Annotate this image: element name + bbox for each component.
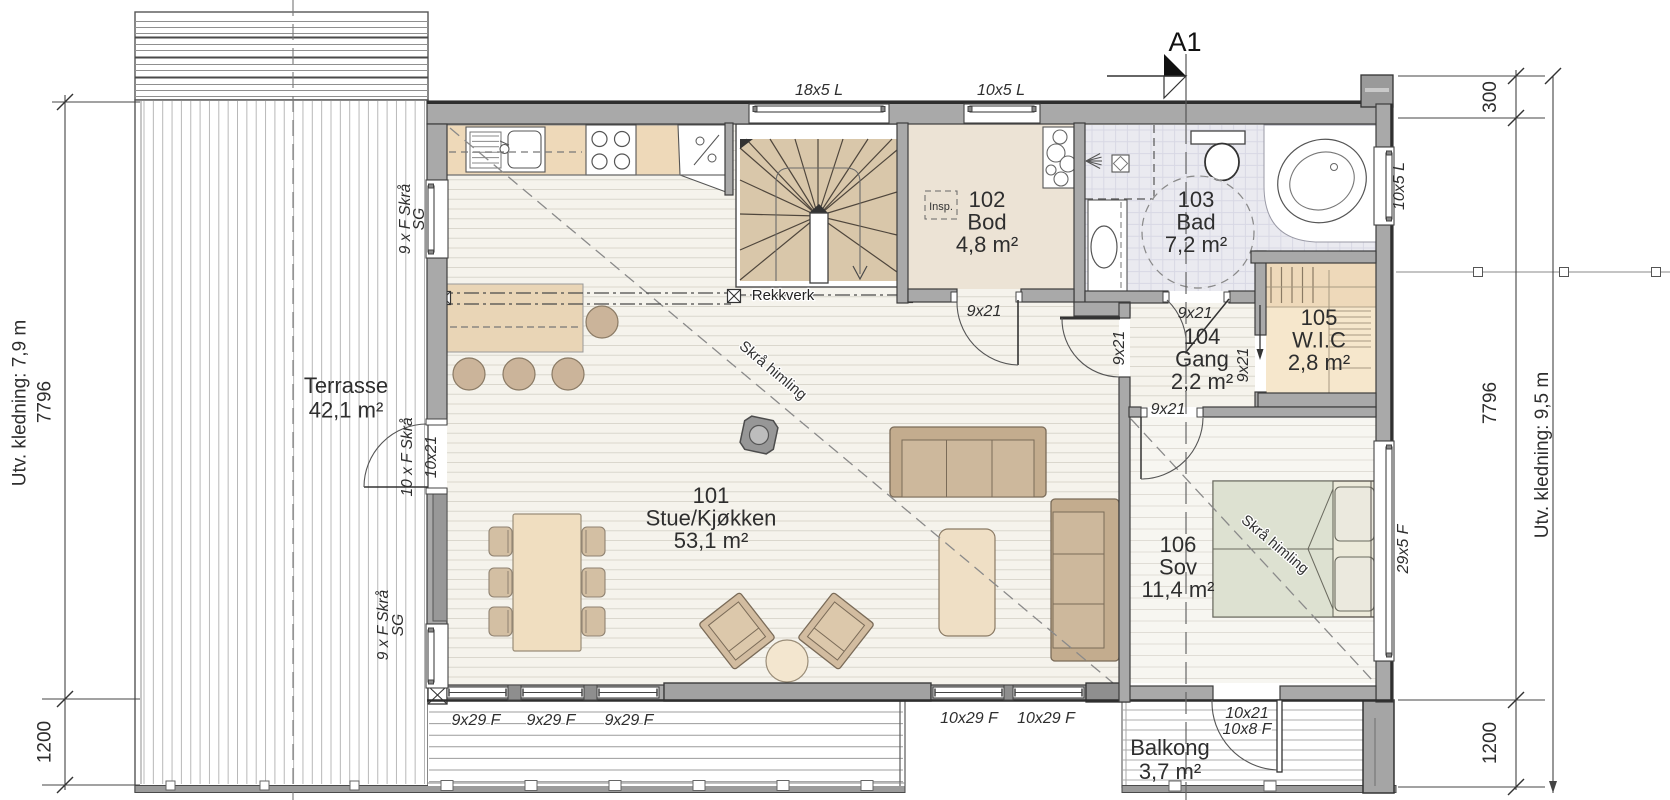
- svg-text:9x21: 9x21: [1111, 331, 1128, 366]
- svg-text:Stue/Kjøkken: Stue/Kjøkken: [646, 506, 777, 531]
- svg-text:9x29 F: 9x29 F: [527, 712, 577, 729]
- svg-text:9x21: 9x21: [967, 303, 1002, 320]
- svg-text:1200: 1200: [35, 721, 56, 763]
- svg-text:10x21: 10x21: [423, 436, 440, 478]
- svg-text:A1: A1: [1168, 27, 1201, 57]
- svg-text:10x5 L: 10x5 L: [977, 82, 1025, 99]
- svg-text:SG: SG: [390, 614, 407, 636]
- svg-text:4,8 m²: 4,8 m²: [956, 232, 1018, 257]
- svg-text:Bad: Bad: [1176, 210, 1215, 235]
- svg-text:1200: 1200: [1480, 722, 1501, 764]
- svg-text:2,2 m²: 2,2 m²: [1171, 369, 1233, 394]
- svg-text:Utv. kledning: 9,5 m: Utv. kledning: 9,5 m: [1532, 372, 1553, 539]
- svg-text:10 x F Skrå: 10 x F Skrå: [399, 417, 416, 496]
- svg-text:105: 105: [1301, 305, 1338, 330]
- svg-text:SG: SG: [411, 208, 428, 230]
- svg-text:7,2 m²: 7,2 m²: [1165, 232, 1227, 257]
- svg-text:9x29 F: 9x29 F: [452, 712, 502, 729]
- svg-text:W.I.C: W.I.C: [1292, 328, 1346, 353]
- svg-text:3,7 m²: 3,7 m²: [1139, 759, 1201, 784]
- svg-text:10x29 F: 10x29 F: [940, 710, 999, 727]
- svg-text:9x29 F: 9x29 F: [605, 712, 655, 729]
- svg-text:10x5 L: 10x5 L: [1391, 162, 1408, 210]
- svg-text:Terrasse: Terrasse: [304, 373, 388, 398]
- svg-text:11,4 m²: 11,4 m²: [1142, 577, 1215, 602]
- svg-text:7796: 7796: [1480, 382, 1501, 424]
- svg-text:7796: 7796: [35, 381, 56, 423]
- svg-text:Gang: Gang: [1175, 347, 1229, 372]
- svg-text:Rekkverk: Rekkverk: [752, 287, 815, 304]
- svg-text:104: 104: [1184, 324, 1221, 349]
- svg-text:42,1 m²: 42,1 m²: [309, 398, 384, 423]
- svg-text:10x21: 10x21: [1225, 705, 1269, 722]
- svg-text:Balkong: Balkong: [1130, 735, 1210, 760]
- svg-text:10x29 F: 10x29 F: [1017, 710, 1076, 727]
- svg-text:53,1 m²: 53,1 m²: [674, 528, 749, 553]
- svg-text:101: 101: [693, 483, 730, 508]
- svg-text:106: 106: [1160, 532, 1197, 557]
- svg-text:10x8 F: 10x8 F: [1223, 721, 1273, 738]
- svg-text:2,8 m²: 2,8 m²: [1288, 350, 1350, 375]
- svg-text:29x5 F: 29x5 F: [1395, 523, 1412, 574]
- svg-text:Utv. kledning: 7,9 m: Utv. kledning: 7,9 m: [10, 320, 31, 487]
- svg-text:300: 300: [1480, 81, 1501, 113]
- svg-text:Sov: Sov: [1159, 555, 1197, 580]
- svg-text:9x21: 9x21: [1151, 401, 1186, 418]
- svg-text:Insp.: Insp.: [929, 201, 953, 213]
- svg-text:Bod: Bod: [967, 210, 1006, 235]
- svg-text:102: 102: [969, 187, 1006, 212]
- svg-text:9x21: 9x21: [1178, 305, 1213, 322]
- svg-text:103: 103: [1178, 187, 1215, 212]
- svg-text:9x21: 9x21: [1235, 348, 1252, 383]
- svg-text:18x5 L: 18x5 L: [795, 82, 843, 99]
